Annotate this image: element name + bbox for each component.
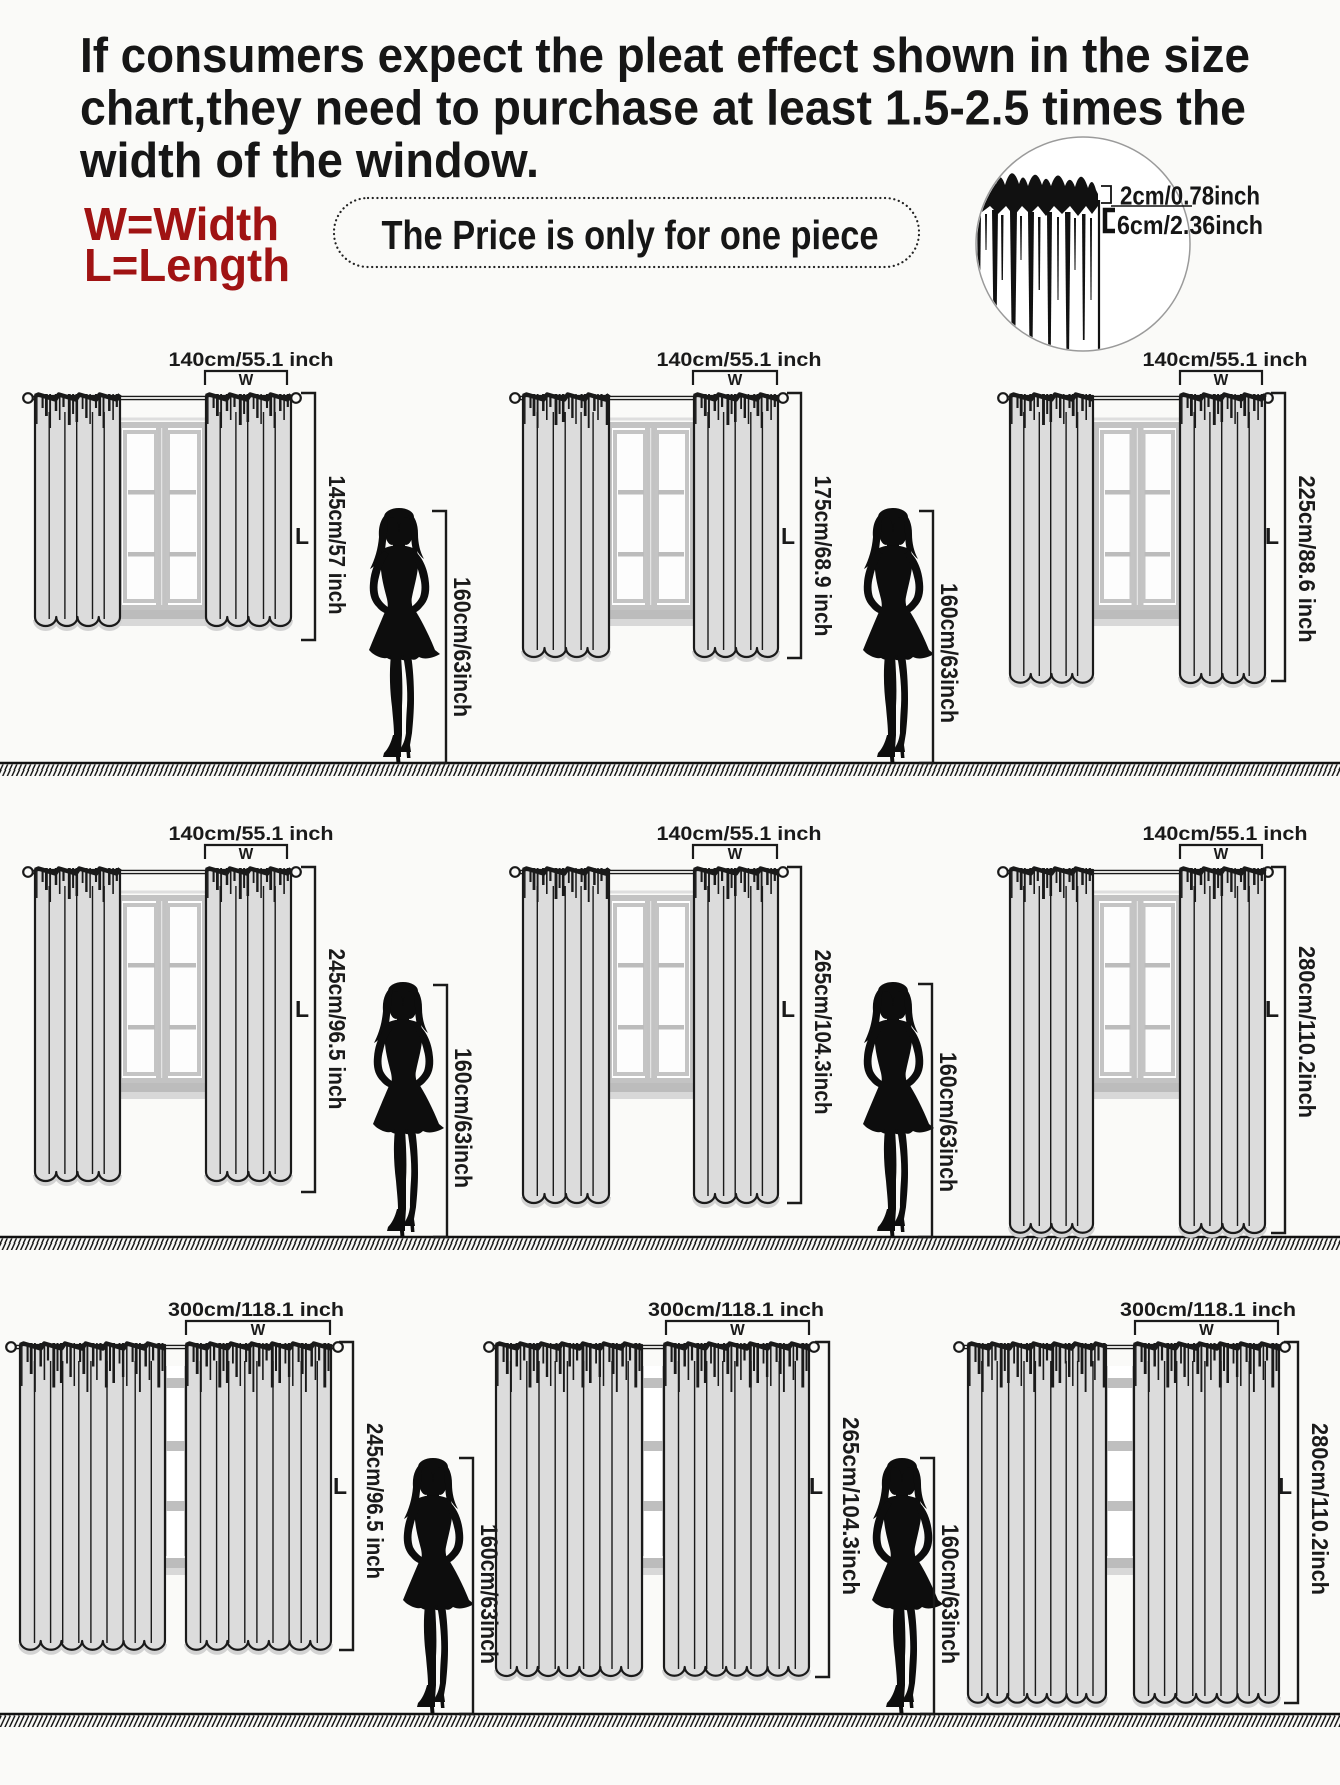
svg-text:W: W <box>728 846 743 863</box>
svg-text:300cm/118.1 inch: 300cm/118.1 inch <box>168 1299 344 1321</box>
svg-text:chart,they need to purchase at: chart,they need to purchase at least 1.5… <box>80 81 1246 136</box>
svg-text:140cm/55.1 inch: 140cm/55.1 inch <box>169 823 334 845</box>
svg-text:160cm/63inch: 160cm/63inch <box>936 1524 963 1664</box>
svg-text:L: L <box>295 996 309 1022</box>
svg-text:175cm/68.9 inch: 175cm/68.9 inch <box>810 476 836 637</box>
svg-text:280cm/110.2inch: 280cm/110.2inch <box>1294 946 1320 1118</box>
svg-text:L: L <box>781 523 795 549</box>
svg-text:145cm/57 inch: 145cm/57 inch <box>324 476 350 615</box>
svg-text:160cm/63inch: 160cm/63inch <box>475 1524 502 1664</box>
svg-text:140cm/55.1 inch: 140cm/55.1 inch <box>657 349 822 371</box>
svg-text:140cm/55.1 inch: 140cm/55.1 inch <box>1143 823 1308 845</box>
svg-text:W: W <box>251 1322 266 1339</box>
svg-text:245cm/96.5 inch: 245cm/96.5 inch <box>362 1423 388 1579</box>
svg-text:L: L <box>333 1473 347 1499</box>
svg-text:The Price is only for one piec: The Price is only for one piece <box>382 212 879 258</box>
svg-text:265cm/104.3inch: 265cm/104.3inch <box>810 950 836 1115</box>
svg-text:L: L <box>295 523 309 549</box>
svg-text:L: L <box>1265 996 1279 1022</box>
svg-text:300cm/118.1 inch: 300cm/118.1 inch <box>648 1299 824 1321</box>
svg-text:W: W <box>1214 372 1229 389</box>
svg-text:width of the window.: width of the window. <box>79 133 539 188</box>
svg-text:160cm/63inch: 160cm/63inch <box>449 1048 476 1188</box>
svg-text:140cm/55.1 inch: 140cm/55.1 inch <box>657 823 822 845</box>
svg-text:140cm/55.1 inch: 140cm/55.1 inch <box>1143 349 1308 371</box>
svg-text:140cm/55.1 inch: 140cm/55.1 inch <box>169 349 334 371</box>
svg-text:W: W <box>1214 846 1229 863</box>
svg-text:2cm/0.78inch: 2cm/0.78inch <box>1120 181 1260 211</box>
svg-text:265cm/104.3inch: 265cm/104.3inch <box>838 1417 864 1595</box>
svg-text:160cm/63inch: 160cm/63inch <box>934 1052 961 1192</box>
svg-text:L: L <box>1278 1473 1292 1499</box>
svg-text:280cm/110.2inch: 280cm/110.2inch <box>1307 1423 1333 1595</box>
svg-text:225cm/88.6 inch: 225cm/88.6 inch <box>1294 476 1320 643</box>
svg-text:W: W <box>728 372 743 389</box>
svg-text:W: W <box>1199 1322 1214 1339</box>
svg-text:L: L <box>1265 523 1279 549</box>
svg-text:W: W <box>239 846 254 863</box>
svg-text:6cm/2.36inch: 6cm/2.36inch <box>1117 210 1263 240</box>
svg-text:W: W <box>730 1322 745 1339</box>
svg-text:160cm/63inch: 160cm/63inch <box>448 577 475 717</box>
svg-text:W: W <box>239 372 254 389</box>
svg-text:245cm/96.5 inch: 245cm/96.5 inch <box>324 949 350 1110</box>
svg-text:300cm/118.1 inch: 300cm/118.1 inch <box>1120 1299 1296 1321</box>
svg-text:L: L <box>809 1473 823 1499</box>
svg-text:If consumers expect the pleat: If consumers expect the pleat effect sho… <box>80 28 1250 83</box>
svg-text:160cm/63inch: 160cm/63inch <box>935 583 962 723</box>
svg-text:L: L <box>781 996 795 1022</box>
svg-text:L=Length: L=Length <box>84 239 290 291</box>
